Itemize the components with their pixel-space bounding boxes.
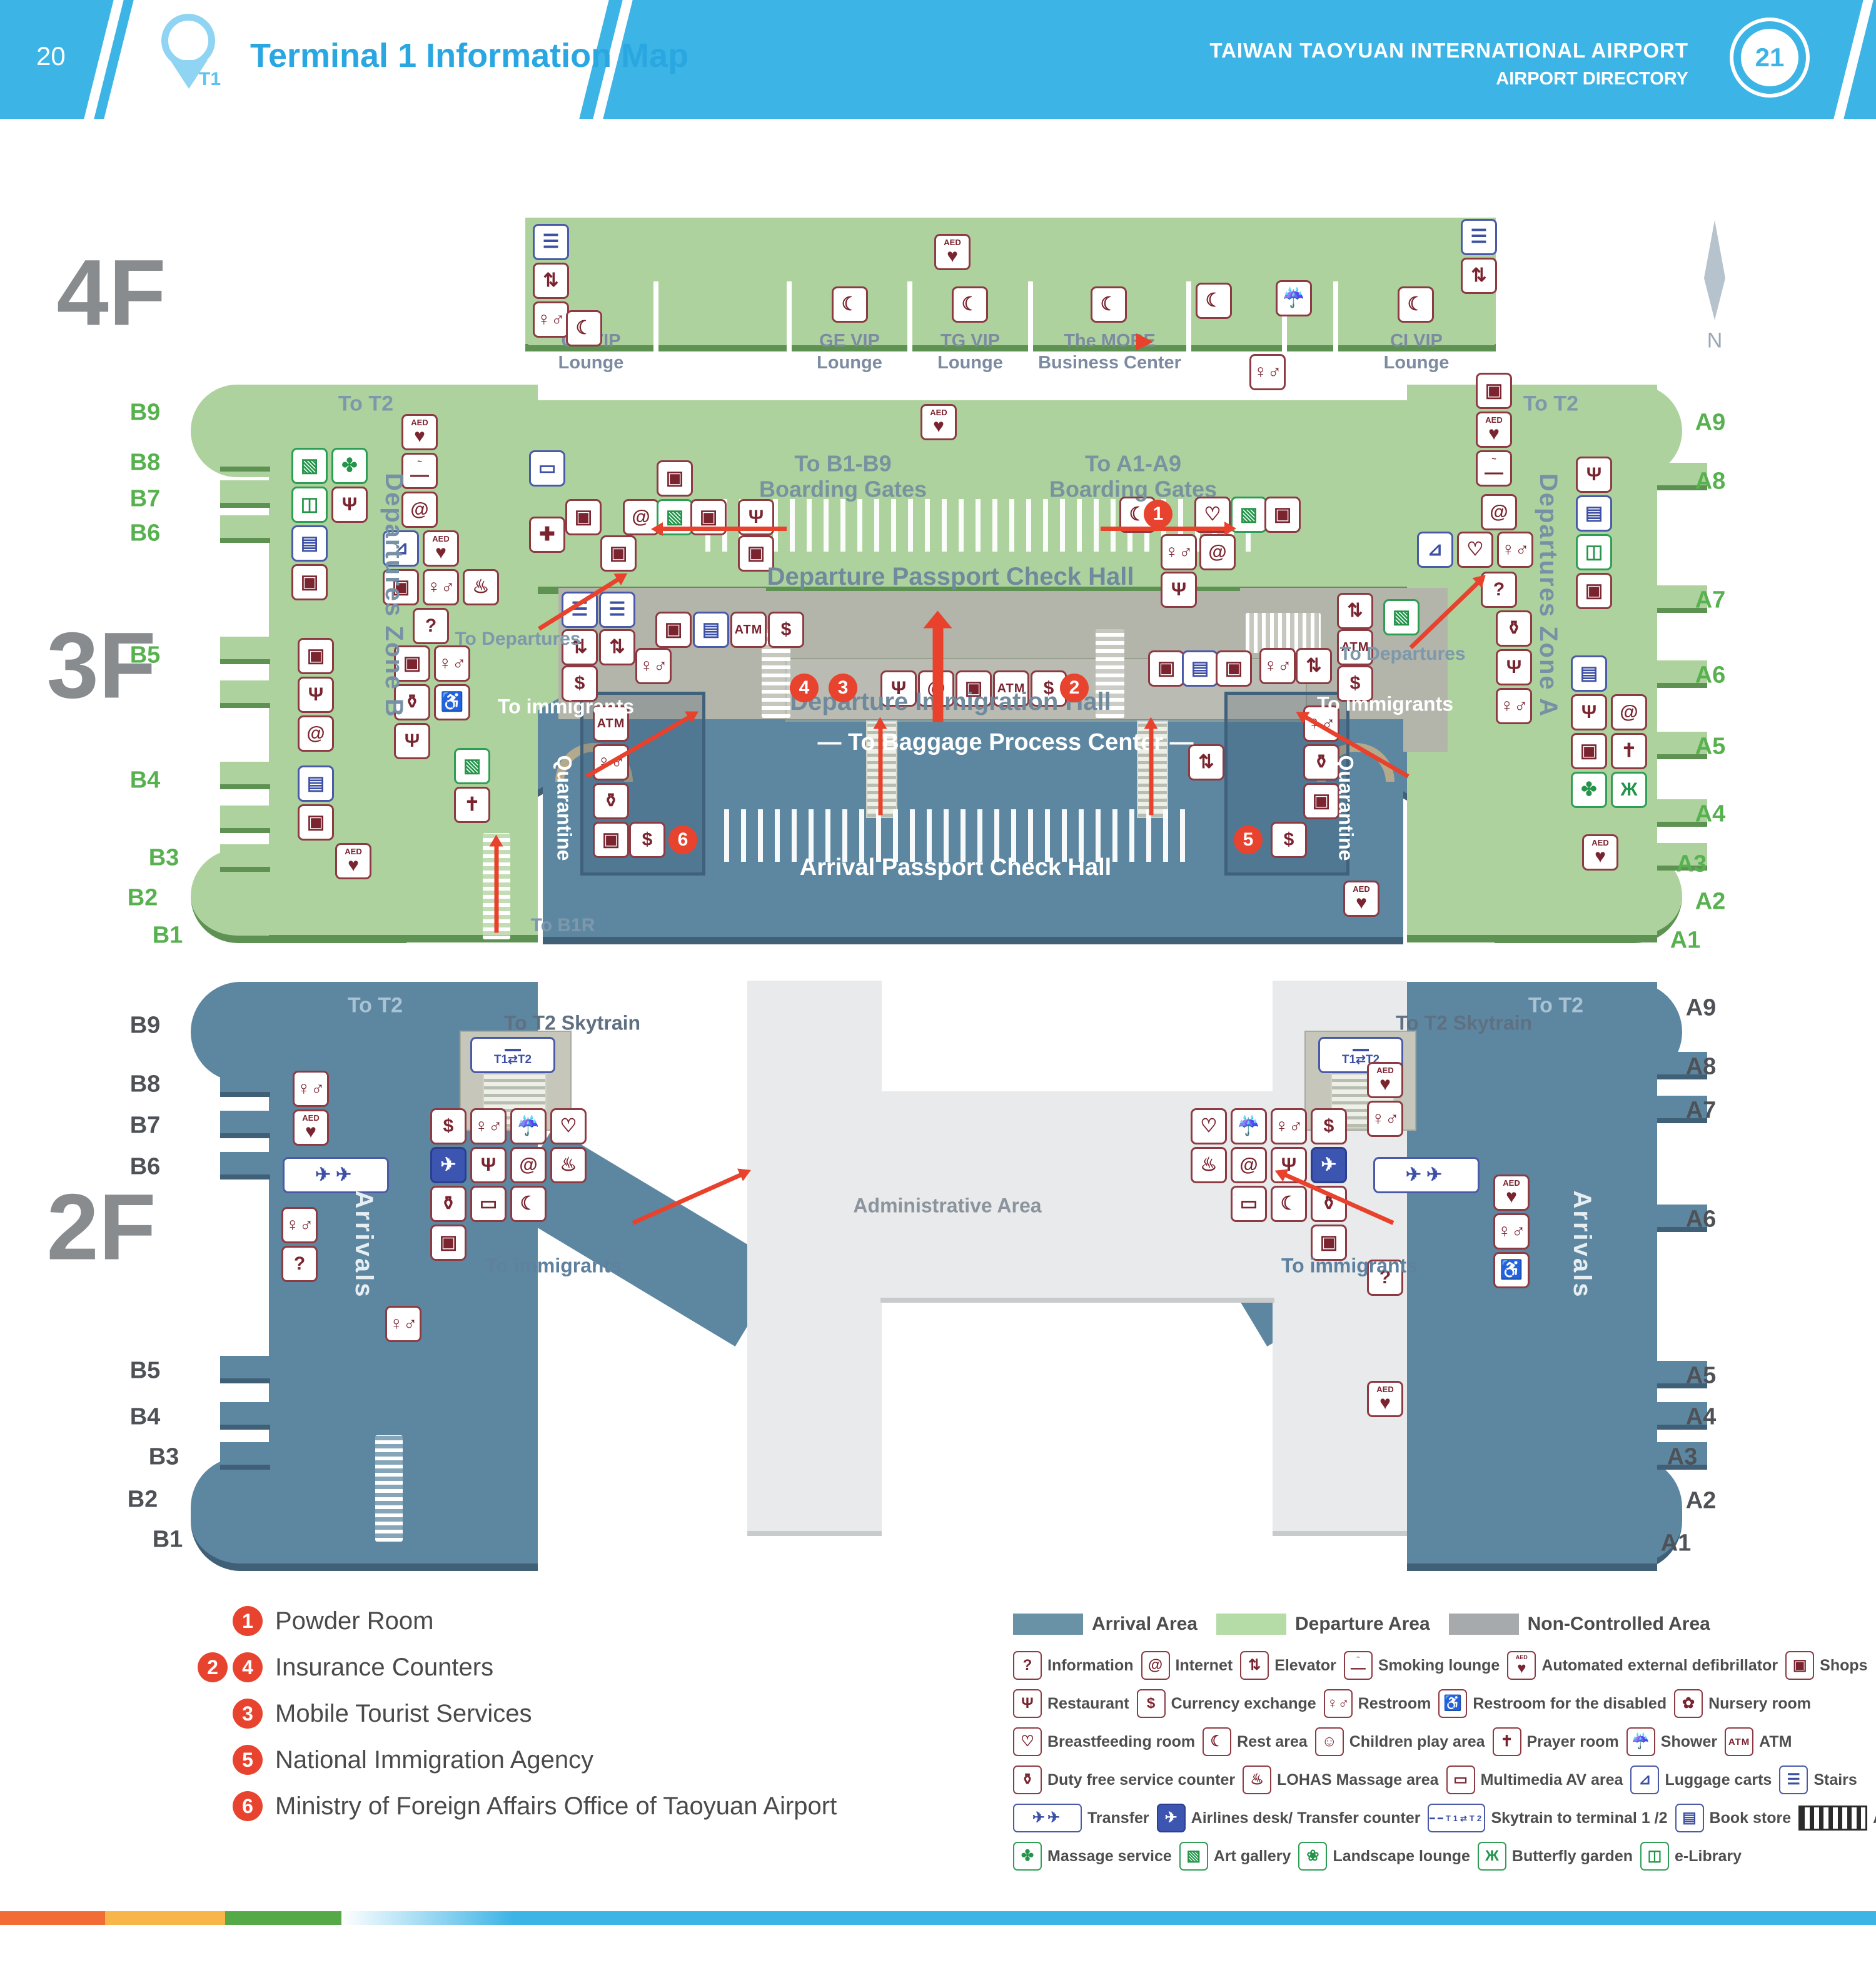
label-administrative-area: Administrative Area — [853, 1195, 1041, 1218]
bookstore-icon: ▤ — [1675, 1804, 1704, 1832]
internet-icon: @ — [1481, 494, 1517, 530]
gate-label-A5: A5 — [1695, 734, 1726, 760]
floor2-admin-left-wing — [747, 981, 882, 1536]
area-swatch — [1449, 1614, 1519, 1635]
footer-strip-blue — [513, 1911, 1876, 1925]
elibrary-icon: ◫ — [1640, 1842, 1669, 1871]
breastfeeding-icon: ♡ — [1191, 1108, 1227, 1144]
legend-item-numbers: 3 — [188, 1699, 263, 1729]
lounge-name: CI VIPLounge — [1338, 330, 1495, 374]
legend-entry: ♡Breastfeeding room — [1013, 1727, 1195, 1756]
stairs-icon: ☰ — [1461, 219, 1497, 255]
legend-entry-label: Smoking lounge — [1378, 1657, 1500, 1675]
legend-entry-label: Transfer — [1087, 1809, 1149, 1827]
legend-entry-label: Stairs — [1813, 1771, 1857, 1789]
label-to-t2: To T2 — [1528, 993, 1583, 1018]
elevator-icon: ⇅ — [1337, 593, 1373, 629]
area-label: Non-Controlled Area — [1528, 1614, 1710, 1635]
marker-1: 1 — [1144, 500, 1172, 528]
direction-arrow — [1101, 527, 1226, 531]
bookstore-icon: ▤ — [1576, 495, 1612, 532]
legend-entry: ☺Children play area — [1315, 1727, 1485, 1756]
label-to-b1-b9-boarding-gates: To B1-B9Boarding Gates — [759, 451, 927, 503]
aed-icon: AED♥ — [1367, 1062, 1403, 1098]
terminal-map-page: 20 T1 Terminal 1 Information Map TAIWAN … — [0, 0, 1876, 1970]
marker-3: 3 — [233, 1699, 263, 1729]
page-number-left: 20 — [36, 41, 66, 71]
legend-item-label: Insurance Counters — [275, 1654, 493, 1682]
gate-label-A4: A4 — [1695, 801, 1726, 828]
restroom-icon: ♀♂ — [533, 301, 569, 338]
legend-entry: ✝Prayer room — [1493, 1727, 1619, 1756]
legend-item-label: National Immigration Agency — [275, 1746, 593, 1774]
shower-icon: ☔ — [510, 1108, 547, 1144]
direction-arrow — [662, 527, 787, 531]
restroom-icon: ♀♂ — [281, 1207, 318, 1243]
legend-item-numbers: 24 — [188, 1652, 263, 1682]
restroom-icon: ♀♂ — [293, 1071, 329, 1107]
shower-icon: ☔ — [1276, 280, 1312, 316]
pin-terminal-label: T1 — [199, 69, 221, 90]
gate-label-A3: A3 — [1667, 1444, 1698, 1471]
elevator-icon: ⇅ — [1188, 744, 1224, 780]
lohas-icon: ♨ — [1191, 1147, 1227, 1183]
legend-entry: $Currency exchange — [1137, 1689, 1316, 1718]
aed-icon: AED♥ — [1582, 834, 1618, 871]
restroom-icon: ♀♂ — [1496, 688, 1532, 724]
dutyfree-icon: ⚱ — [1013, 1765, 1042, 1794]
label-arrival-passport-check-hall: Arrival Passport Check Hall — [800, 854, 1111, 882]
currency-icon: $ — [629, 822, 665, 858]
restroom-icon: ♀♂ — [1367, 1101, 1403, 1137]
marker-5: 5 — [233, 1745, 263, 1775]
gate-label-A1: A1 — [1661, 1530, 1692, 1557]
skytrain-icon: ▬▬T1⇄T2 — [1428, 1804, 1485, 1832]
legend-entry: ⊿Luggage carts — [1630, 1765, 1772, 1794]
gate-label-A9: A9 — [1686, 995, 1717, 1022]
shops-icon: ▣ — [298, 638, 334, 674]
rest-icon: ☾ — [1398, 286, 1434, 323]
dutyfree-icon: ⚱ — [430, 1186, 466, 1222]
gate-label-B6: B6 — [130, 520, 161, 547]
aed-icon: AED♥ — [423, 530, 459, 567]
rest-icon: ☾ — [1091, 286, 1127, 323]
jet-bridge-stub — [220, 844, 270, 872]
legend-entry: ▭Multimedia AV area — [1446, 1765, 1623, 1794]
multimedia-icon: ▭ — [529, 450, 565, 487]
legend-entry-label: Elevator — [1274, 1657, 1336, 1675]
aed-icon: AED♥ — [920, 404, 957, 440]
smoking-icon: ~— — [1476, 450, 1512, 487]
lohas-icon: ♨ — [1243, 1765, 1271, 1794]
label-to-b1r: To B1R — [531, 915, 595, 937]
restaurant-icon: Ψ — [298, 677, 334, 713]
restroom-icon: ♀♂ — [423, 569, 459, 605]
label-to-t2-skytrain: To T2 Skytrain — [504, 1012, 640, 1035]
legend-row: ✤Massage service▧Art gallery❀Landscape l… — [1013, 1842, 1857, 1871]
marker-1: 1 — [233, 1606, 263, 1636]
sidewalk-icon — [1798, 1806, 1867, 1831]
marker-2: 2 — [1060, 674, 1089, 702]
shops-icon: ▣ — [298, 804, 334, 841]
direction-arrow — [495, 846, 499, 933]
shops-icon: ▣ — [1264, 497, 1301, 533]
legend-entry: Automatic sidewalk — [1798, 1806, 1876, 1831]
legend-entry: ▣Shops — [1785, 1651, 1867, 1680]
swh-deco — [1246, 613, 1321, 653]
legend-item-numbers: 5 — [188, 1745, 263, 1775]
jet-bridge-stub — [220, 444, 270, 472]
area-legend-item: Non-Controlled Area — [1449, 1614, 1710, 1635]
legend-entry-label: Book store — [1710, 1809, 1792, 1827]
legend-entry: ✿Nursery room — [1674, 1689, 1811, 1718]
legend-entry: ☾Rest area — [1203, 1727, 1308, 1756]
marker-4: 4 — [790, 674, 819, 702]
gate-label-A8: A8 — [1686, 1054, 1717, 1081]
disabled-icon: ♿ — [1438, 1689, 1467, 1718]
lounge-separator — [653, 281, 658, 354]
legend-entry-label: Nursery room — [1708, 1695, 1811, 1713]
prayer-icon: ✝ — [454, 787, 490, 823]
legend-entry: ☔Shower — [1626, 1727, 1717, 1756]
restroom-icon: ♀♂ — [1324, 1689, 1353, 1718]
lounge-separator — [1186, 281, 1191, 354]
jet-bridge-stub — [220, 1111, 270, 1138]
internet-icon: @ — [1231, 1147, 1267, 1183]
stairs-icon: ☰ — [533, 224, 569, 260]
lounge-separator — [1028, 281, 1033, 354]
lounge-name: GE VIPLounge — [792, 330, 907, 374]
massage-icon: ✤ — [1013, 1842, 1042, 1871]
internet-icon: @ — [1611, 694, 1647, 730]
gate-label-A2: A2 — [1695, 889, 1726, 916]
label-quarantine: Quarantine — [1334, 755, 1358, 861]
footer-strip-orange — [0, 1911, 105, 1925]
legend-item: 6Ministry of Foreign Affairs Office of T… — [188, 1791, 837, 1821]
lounge-name: TG VIPLounge — [912, 330, 1028, 374]
shops-icon: ▣ — [1476, 373, 1512, 409]
airlines-icon: ✈ — [1157, 1804, 1186, 1832]
legend-entry: ✈Airlines desk/ Transfer counter — [1157, 1804, 1421, 1832]
icon-legend: Arrival AreaDeparture AreaNon-Controlled… — [1013, 1614, 1857, 1880]
legend-entry: ATMATM — [1725, 1727, 1792, 1756]
internet-icon: @ — [298, 715, 334, 752]
marker-5: 5 — [1234, 826, 1263, 854]
restroom-icon: ♀♂ — [470, 1108, 507, 1144]
multimedia-icon: ▭ — [1446, 1765, 1475, 1794]
gate-label-A4: A4 — [1686, 1404, 1717, 1431]
restaurant-icon: Ψ — [331, 487, 368, 523]
aed-icon: AED♥ — [1343, 881, 1379, 917]
prayer-icon: ✝ — [1493, 1727, 1521, 1756]
disabled-icon: ♿ — [1493, 1252, 1530, 1288]
lohas-icon: ♨ — [550, 1147, 587, 1183]
legend-entry-label: Children play area — [1349, 1733, 1485, 1751]
bookstore-icon: ▤ — [1182, 650, 1218, 687]
shops-icon: ▣ — [600, 535, 637, 572]
legend-entry: ❀Landscape lounge — [1298, 1842, 1470, 1871]
currency-icon: $ — [430, 1108, 466, 1144]
directory-label: AIRPORT DIRECTORY — [1209, 69, 1688, 89]
marker-6: 6 — [233, 1791, 263, 1821]
shops-icon: ▣ — [430, 1225, 466, 1261]
legend-entry-label: Prayer room — [1527, 1733, 1619, 1751]
butterfly-icon: Ж — [1611, 772, 1647, 808]
legend-entry-label: Internet — [1176, 1657, 1233, 1675]
legend-entry-label: Duty free service counter — [1047, 1771, 1235, 1789]
bookstore-icon: ▤ — [298, 765, 334, 802]
legend-entry: AED♥Automated external defibrillator — [1507, 1651, 1778, 1680]
stairs-icon: ☰ — [1779, 1765, 1808, 1794]
gate-label-B6: B6 — [130, 1154, 161, 1181]
floor2-pier-a — [1407, 982, 1657, 1571]
restroom-icon: ♀♂ — [1249, 354, 1286, 390]
rest-icon: ☾ — [952, 286, 988, 323]
legend-entry-label: Currency exchange — [1171, 1695, 1316, 1713]
art-icon: ▧ — [1383, 599, 1420, 635]
info-icon: ? — [413, 608, 449, 644]
area-legend: Arrival AreaDeparture AreaNon-Controlled… — [1013, 1614, 1857, 1635]
gate-label-A9: A9 — [1695, 410, 1726, 437]
gate-label-B7: B7 — [130, 486, 161, 513]
legend-entry: ♨LOHAS Massage area — [1243, 1765, 1438, 1794]
footer-strip-fade — [341, 1911, 513, 1925]
area-legend-item: Departure Area — [1216, 1614, 1430, 1635]
label-to-immigrants: To immigrants — [1317, 693, 1453, 716]
label-departures-zone-a: Departures Zone A — [1534, 473, 1563, 717]
legend-entry: ЖButterfly garden — [1478, 1842, 1633, 1871]
legend-row: ✈✈Transfer✈Airlines desk/ Transfer count… — [1013, 1804, 1857, 1832]
jet-bridge-stub — [220, 762, 270, 789]
legend-item-label: Ministry of Foreign Affairs Office of Ta… — [275, 1792, 837, 1821]
transfer-icon: ✈✈ — [283, 1157, 389, 1193]
legend-entry-label: e-Library — [1675, 1847, 1742, 1866]
aed-icon: AED♥ — [293, 1109, 329, 1146]
gate-label-B3: B3 — [149, 845, 179, 872]
legend-entry-label: Shower — [1661, 1733, 1717, 1751]
jet-bridge-stub — [220, 1069, 270, 1097]
gate-label-B8: B8 — [130, 450, 161, 477]
legend-entry: ✤Massage service — [1013, 1842, 1172, 1871]
currency-icon: $ — [768, 612, 804, 648]
legend-entry-label: Landscape lounge — [1333, 1847, 1470, 1866]
atm-icon: ATM — [1725, 1727, 1753, 1756]
aed-icon: AED♥ — [934, 234, 971, 270]
label-arrivals: Arrivals — [1568, 1191, 1596, 1299]
label-to-departures: To Departures — [455, 629, 580, 650]
footer-strip-green — [225, 1911, 341, 1925]
rest-icon: ☾ — [510, 1186, 547, 1222]
legend-entry-label: Automated external defibrillator — [1541, 1657, 1778, 1675]
butterfly-icon: Ж — [1478, 1842, 1506, 1871]
legend-entry-label: Butterfly garden — [1512, 1847, 1633, 1866]
cross-icon: ✚ — [529, 517, 565, 553]
restaurant-icon: Ψ — [1161, 572, 1197, 608]
floor-label-2f: 2F — [46, 1173, 156, 1281]
bookstore-icon: ▤ — [291, 525, 328, 562]
jet-bridge-stub — [220, 1152, 270, 1179]
restroom-icon: ♀♂ — [1259, 648, 1296, 684]
legend-item-numbers: 1 — [188, 1606, 263, 1636]
restaurant-icon: Ψ — [394, 723, 430, 759]
shops-icon: ▣ — [1216, 650, 1252, 687]
smoking-icon: ~— — [1344, 1651, 1373, 1680]
jet-bridge-stub — [220, 806, 270, 833]
lounge-name: The MOREBusiness Center — [1033, 330, 1186, 374]
legend-entry-label: Shops — [1820, 1657, 1867, 1675]
label-departure-passport-check-hall: Departure Passport Check Hall — [767, 562, 1134, 591]
legend-entry-label: ATM — [1759, 1733, 1792, 1751]
restaurant-icon: Ψ — [1013, 1689, 1042, 1718]
numbered-legend: 1Powder Room24Insurance Counters3Mobile … — [188, 1606, 837, 1837]
jet-bridge-stub — [220, 1442, 270, 1470]
restaurant-icon: Ψ — [1576, 457, 1612, 493]
footer-strip-amber — [105, 1911, 225, 1925]
direction-arrow — [1149, 728, 1154, 816]
gate-label-B5: B5 — [130, 642, 161, 669]
restroom-icon: ♀♂ — [635, 648, 672, 684]
gate-label-A6: A6 — [1686, 1206, 1717, 1233]
restaurant-icon: Ψ — [470, 1147, 507, 1183]
legend-entry: ♿Restroom for the disabled — [1438, 1689, 1667, 1718]
skytrain-icon: ▬▬T1⇄T2 — [470, 1037, 555, 1073]
gate-label-A7: A7 — [1695, 587, 1726, 614]
legend-row: ΨRestaurant$Currency exchange♀♂Restroom♿… — [1013, 1689, 1857, 1718]
floor-label-4f: 4F — [56, 239, 166, 347]
marker-6: 6 — [668, 826, 697, 854]
legend-entry: ▬▬T1⇄T2Skytrain to terminal 1 /2 — [1428, 1804, 1667, 1832]
marker-2: 2 — [198, 1652, 228, 1682]
rest-icon: ☾ — [1203, 1727, 1231, 1756]
legend-entry-label: Restaurant — [1047, 1695, 1129, 1713]
label-to-t2: To T2 — [348, 993, 403, 1018]
area-label: Departure Area — [1295, 1614, 1430, 1635]
massage-icon: ✤ — [1571, 772, 1607, 808]
shops-icon: ▣ — [655, 612, 692, 648]
gate-label-B8: B8 — [130, 1071, 161, 1098]
header-stripe — [1832, 0, 1875, 125]
elevator-icon: ⇅ — [533, 263, 569, 299]
restroom-icon: ♀♂ — [1493, 1213, 1530, 1250]
gate-label-B3: B3 — [149, 1444, 179, 1471]
label-to-immigrants: To immigrants — [498, 695, 634, 719]
dutyfree-icon: ⚱ — [1496, 610, 1532, 647]
gate-label-A7: A7 — [1686, 1098, 1717, 1124]
massage-icon: ✤ — [331, 448, 368, 484]
nursery-icon: ✿ — [1674, 1689, 1703, 1718]
label-to-immigrants: To immigrants — [1281, 1255, 1418, 1278]
gate-label-B4: B4 — [130, 767, 161, 794]
gate-label-A3: A3 — [1677, 851, 1707, 878]
direction-arrow — [933, 627, 944, 722]
marker-4: 4 — [233, 1652, 263, 1682]
legend-row: ?Information@Internet⇅Elevator~—Smoking … — [1013, 1651, 1857, 1680]
elevator-icon: ⇅ — [599, 629, 635, 665]
aed-icon: AED♥ — [1367, 1381, 1403, 1417]
internet-icon: @ — [1199, 534, 1236, 570]
stairs-icon: ☰ — [599, 592, 635, 628]
legend-item-label: Powder Room — [275, 1607, 433, 1635]
aed-icon: AED♥ — [1493, 1174, 1530, 1211]
page-number-right: 21 — [1741, 29, 1798, 86]
airport-name-line: TAIWAN TAOYUAN INTERNATIONAL AIRPORT — [1209, 39, 1688, 63]
marker-3: 3 — [829, 674, 857, 702]
restaurant-icon: Ψ — [1571, 694, 1607, 730]
gate-label-A2: A2 — [1686, 1488, 1717, 1515]
gate-label-B1: B1 — [153, 1527, 183, 1553]
currency-icon: $ — [1311, 1108, 1347, 1144]
shops-icon: ▣ — [1148, 650, 1184, 687]
direction-arrow — [879, 728, 883, 816]
legend-entry-label: Breastfeeding room — [1047, 1733, 1195, 1751]
label-to-immigrants: To immigrants — [485, 1255, 622, 1278]
legend-entry-label: Multimedia AV area — [1481, 1771, 1623, 1789]
legend-entry: ☰Stairs — [1779, 1765, 1857, 1794]
breastfeeding-icon: ♡ — [1457, 532, 1493, 568]
internet-icon: @ — [510, 1147, 547, 1183]
legend-entry-label: Information — [1047, 1657, 1134, 1675]
shower-icon: ☔ — [1626, 1727, 1655, 1756]
legend-entry-label: Automatic sidewalk — [1873, 1809, 1876, 1827]
art-icon: ▧ — [454, 748, 490, 784]
lounge-separator — [787, 281, 792, 354]
jet-bridge-stub — [220, 680, 270, 708]
lounge-separator — [907, 281, 912, 354]
gate-label-B9: B9 — [130, 1013, 161, 1039]
jet-bridge-stub — [220, 480, 270, 508]
restroom-icon: ♀♂ — [1271, 1108, 1307, 1144]
rest-icon: ☾ — [1271, 1186, 1307, 1222]
internet-icon: @ — [1141, 1651, 1170, 1680]
info-icon: ? — [281, 1246, 318, 1282]
rest-icon: ☾ — [832, 286, 868, 323]
airport-name: TAIWAN TAOYUAN INTERNATIONAL AIRPORT AIR… — [1209, 39, 1688, 89]
airlines-icon: ✈ — [430, 1147, 466, 1183]
label-departures-zone-b: Departures Zone B — [380, 473, 408, 718]
legend-entry: ?Information — [1013, 1651, 1134, 1680]
breastfeeding-icon: ♡ — [550, 1108, 587, 1144]
legend-entry-label: Airlines desk/ Transfer counter — [1191, 1809, 1421, 1827]
gate-label-B7: B7 — [130, 1113, 161, 1139]
shops-icon: ▣ — [291, 564, 328, 600]
gate-label-B2: B2 — [128, 885, 158, 912]
art-icon: ▧ — [291, 448, 328, 484]
legend-entry: ♀♂Restroom — [1324, 1689, 1431, 1718]
aed-icon: AED♥ — [1507, 1651, 1536, 1680]
area-legend-item: Arrival Area — [1013, 1614, 1198, 1635]
legend-entry-label: Skytrain to terminal 1 /2 — [1491, 1809, 1667, 1827]
label-quarantine: Quarantine — [553, 755, 576, 861]
disabled-icon: ♿ — [434, 684, 470, 720]
rest-icon: ☾ — [1196, 283, 1232, 319]
transfer-icon: ✈✈ — [1013, 1804, 1082, 1832]
legend-entry: ~—Smoking lounge — [1344, 1651, 1500, 1680]
elevator-icon: ⇅ — [1296, 648, 1332, 684]
dutyfree-icon: ⚱ — [593, 783, 629, 819]
restroom-icon: ♀♂ — [1161, 534, 1197, 570]
currency-icon: $ — [1271, 822, 1307, 858]
swv-deco — [375, 1435, 403, 1542]
legend-entry: ✈✈Transfer — [1013, 1804, 1149, 1832]
label-to-t2: To T2 — [1523, 391, 1578, 416]
page-number-right-badge: 21 — [1730, 18, 1810, 98]
footer-strip — [0, 1911, 1876, 1925]
legend-entry: ⇅Elevator — [1240, 1651, 1336, 1680]
compass-north-icon — [1704, 220, 1725, 320]
shops-icon: ▣ — [593, 822, 629, 858]
bookstore-icon: ▤ — [693, 612, 729, 648]
luggage-icon: ⊿ — [1417, 532, 1453, 568]
